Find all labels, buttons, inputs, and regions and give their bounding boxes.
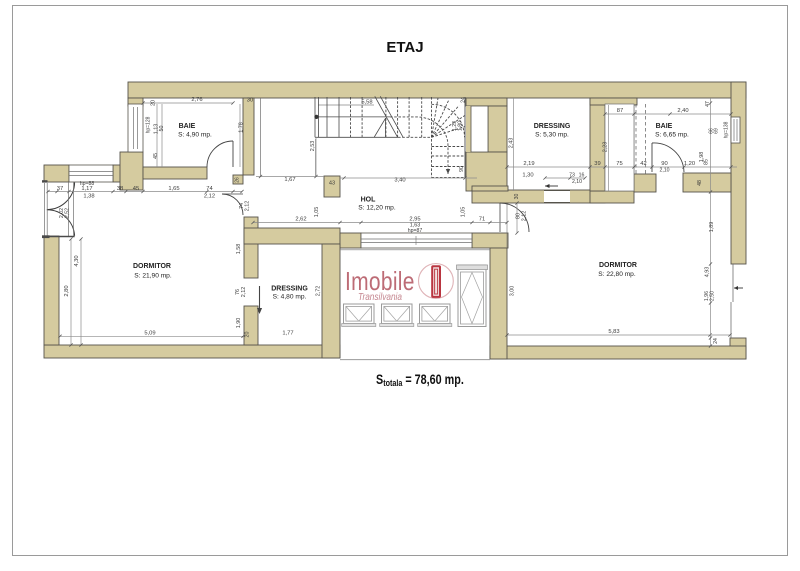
svg-text:39: 39 bbox=[594, 161, 600, 167]
svg-text:75: 75 bbox=[616, 161, 622, 167]
svg-text:4,30: 4,30 bbox=[74, 255, 80, 266]
svg-text:26: 26 bbox=[235, 177, 241, 183]
svg-text:S: 12,20 mp.: S: 12,20 mp. bbox=[358, 205, 396, 212]
svg-text:hp=128: hp=128 bbox=[146, 116, 152, 133]
svg-text:2,12: 2,12 bbox=[204, 194, 215, 200]
svg-text:2,76: 2,76 bbox=[191, 97, 202, 103]
svg-text:74: 74 bbox=[206, 186, 213, 192]
svg-text:1,05: 1,05 bbox=[314, 207, 320, 218]
svg-text:5,09: 5,09 bbox=[144, 331, 155, 337]
svg-text:2,50: 2,50 bbox=[710, 291, 716, 301]
svg-text:2,10: 2,10 bbox=[659, 168, 669, 174]
svg-text:1,30: 1,30 bbox=[522, 173, 533, 179]
svg-text:S: 5,30 mp.: S: 5,30 mp. bbox=[535, 132, 569, 139]
svg-text:50: 50 bbox=[159, 126, 165, 132]
svg-text:2,80: 2,80 bbox=[64, 285, 70, 296]
svg-text:2,10: 2,10 bbox=[572, 179, 582, 185]
svg-text:48: 48 bbox=[697, 180, 703, 186]
svg-text:45: 45 bbox=[133, 186, 139, 192]
svg-text:DORMITOR: DORMITOR bbox=[599, 262, 637, 269]
svg-text:1,20: 1,20 bbox=[684, 161, 695, 167]
svg-text:DRESSING: DRESSING bbox=[271, 286, 308, 293]
svg-text:90: 90 bbox=[661, 161, 667, 167]
svg-text:1,89: 1,89 bbox=[709, 222, 715, 233]
svg-text:90: 90 bbox=[459, 166, 465, 172]
svg-text:1,80: 1,80 bbox=[458, 121, 464, 131]
svg-text:2,12: 2,12 bbox=[522, 211, 528, 222]
svg-text:1,58: 1,58 bbox=[236, 244, 242, 255]
svg-text:2,12: 2,12 bbox=[245, 201, 251, 212]
svg-text:1,65: 1,65 bbox=[168, 186, 179, 192]
svg-text:2,52: 2,52 bbox=[65, 208, 71, 218]
svg-text:DORMITOR: DORMITOR bbox=[133, 263, 171, 270]
svg-text:69: 69 bbox=[714, 128, 720, 134]
svg-text:hp=87: hp=87 bbox=[408, 228, 423, 234]
svg-text:1,67: 1,67 bbox=[284, 177, 295, 183]
svg-text:87: 87 bbox=[617, 108, 623, 114]
svg-text:2,72: 2,72 bbox=[316, 286, 322, 297]
svg-text:2,53: 2,53 bbox=[310, 141, 316, 152]
svg-text:S: 21,90 mp.: S: 21,90 mp. bbox=[134, 273, 172, 280]
svg-text:1,78: 1,78 bbox=[239, 122, 245, 133]
svg-text:1,90: 1,90 bbox=[236, 318, 242, 329]
svg-text:3,00: 3,00 bbox=[510, 286, 516, 297]
svg-text:2,12: 2,12 bbox=[241, 287, 247, 298]
svg-text:30: 30 bbox=[247, 98, 253, 104]
svg-text:3,40: 3,40 bbox=[394, 178, 405, 184]
svg-text:ETAJ: ETAJ bbox=[386, 39, 423, 56]
svg-text:37: 37 bbox=[57, 186, 63, 192]
svg-text:2,40: 2,40 bbox=[677, 108, 688, 114]
svg-text:hp=88: hp=88 bbox=[80, 181, 95, 187]
svg-text:47: 47 bbox=[705, 101, 711, 107]
svg-text:20: 20 bbox=[245, 332, 251, 338]
svg-text:85: 85 bbox=[704, 159, 710, 165]
svg-text:HOL: HOL bbox=[361, 197, 377, 204]
svg-text:2,19: 2,19 bbox=[523, 161, 534, 167]
svg-text:2,23: 2,23 bbox=[603, 142, 609, 153]
svg-text:2,62: 2,62 bbox=[295, 217, 306, 223]
svg-text:71: 71 bbox=[479, 217, 485, 223]
svg-text:45: 45 bbox=[153, 153, 159, 159]
svg-text:1,38: 1,38 bbox=[83, 194, 94, 200]
svg-text:2,43: 2,43 bbox=[509, 138, 515, 149]
svg-text:73: 73 bbox=[569, 173, 575, 179]
svg-text:42: 42 bbox=[640, 161, 646, 167]
svg-text:43: 43 bbox=[329, 181, 335, 187]
svg-text:4,93: 4,93 bbox=[705, 267, 711, 278]
svg-text:BAIE: BAIE bbox=[179, 123, 196, 130]
svg-text:S: 4,80 mp.: S: 4,80 mp. bbox=[273, 294, 307, 301]
svg-text:S: 6,65 mp.: S: 6,65 mp. bbox=[655, 132, 689, 139]
svg-text:24: 24 bbox=[713, 338, 719, 344]
svg-text:S: 22,80 mp.: S: 22,80 mp. bbox=[598, 271, 636, 278]
svg-text:DRESSING: DRESSING bbox=[534, 123, 571, 130]
svg-text:38: 38 bbox=[117, 186, 123, 192]
svg-text:5,83: 5,83 bbox=[608, 329, 619, 335]
svg-text:S: 4,90 mp.: S: 4,90 mp. bbox=[178, 132, 212, 139]
svg-text:Transilvania: Transilvania bbox=[358, 292, 402, 303]
svg-text:20: 20 bbox=[151, 100, 157, 106]
svg-text:24: 24 bbox=[461, 97, 467, 103]
svg-text:1,77: 1,77 bbox=[282, 331, 293, 337]
svg-text:30: 30 bbox=[514, 194, 520, 200]
svg-text:BAIE: BAIE bbox=[656, 123, 673, 130]
svg-text:5,58: 5,58 bbox=[361, 100, 372, 106]
svg-text:hp=138: hp=138 bbox=[724, 121, 730, 138]
svg-text:16: 16 bbox=[579, 173, 585, 179]
svg-text:1,05: 1,05 bbox=[461, 207, 467, 218]
